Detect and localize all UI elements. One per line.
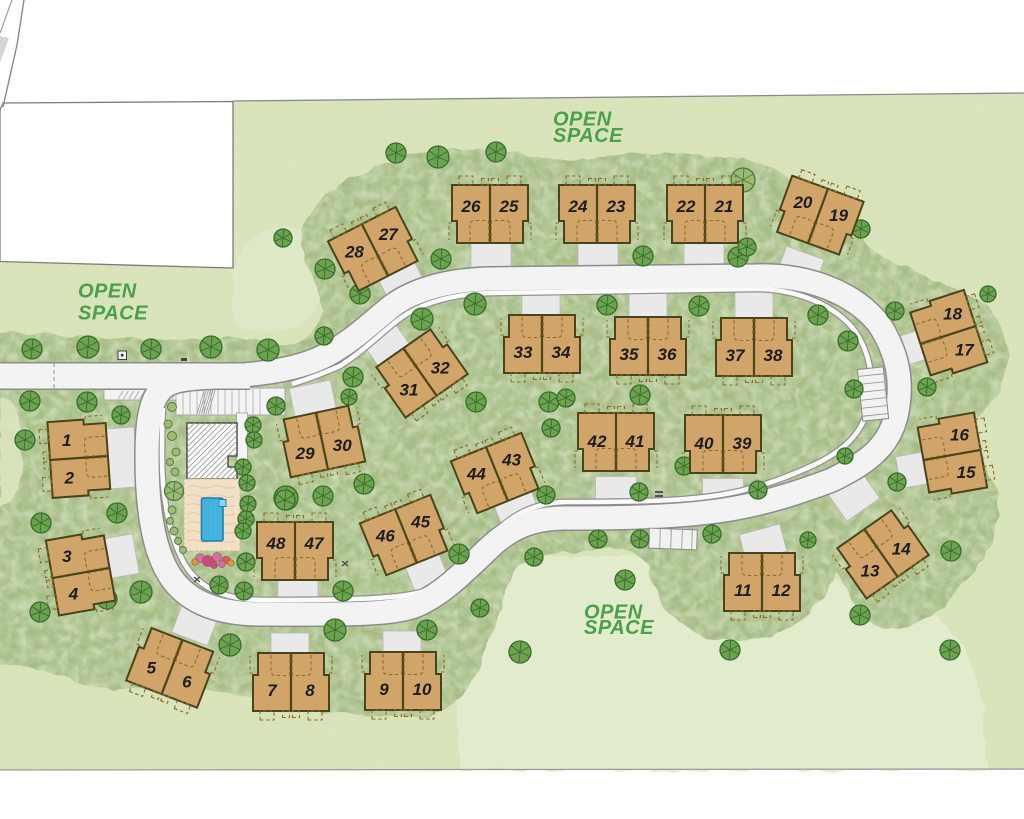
- svg-text:39: 39: [733, 434, 752, 453]
- svg-text:SPACE: SPACE: [553, 125, 623, 147]
- svg-text:15: 15: [957, 463, 976, 482]
- svg-text:6: 6: [182, 672, 192, 691]
- svg-text:33: 33: [514, 343, 533, 362]
- svg-text:45: 45: [410, 513, 430, 532]
- svg-text:14: 14: [892, 540, 911, 559]
- svg-text:SPACE: SPACE: [78, 303, 148, 325]
- svg-text:27: 27: [378, 225, 399, 244]
- svg-text:43: 43: [501, 451, 521, 470]
- svg-text:20: 20: [792, 193, 812, 212]
- svg-text:13: 13: [861, 562, 880, 581]
- svg-text:21: 21: [714, 197, 734, 216]
- svg-text:OPEN: OPEN: [78, 281, 137, 303]
- svg-text:12: 12: [772, 581, 791, 600]
- svg-text:48: 48: [266, 534, 286, 553]
- svg-text:16: 16: [950, 425, 969, 444]
- svg-text:19: 19: [829, 206, 848, 225]
- svg-text:37: 37: [726, 346, 746, 365]
- svg-text:44: 44: [466, 465, 486, 484]
- svg-text:24: 24: [568, 197, 588, 216]
- svg-text:1: 1: [62, 431, 71, 450]
- svg-text:22: 22: [676, 197, 696, 216]
- svg-text:11: 11: [734, 581, 752, 600]
- svg-text:46: 46: [375, 527, 395, 546]
- svg-text:30: 30: [333, 436, 352, 455]
- svg-text:9: 9: [379, 680, 389, 699]
- svg-text:29: 29: [295, 444, 315, 463]
- svg-text:26: 26: [461, 197, 481, 216]
- svg-text:36: 36: [658, 345, 677, 364]
- svg-text:38: 38: [764, 346, 783, 365]
- svg-text:32: 32: [431, 359, 450, 378]
- svg-text:5: 5: [147, 659, 157, 678]
- svg-text:SPACE: SPACE: [584, 617, 654, 639]
- svg-text:28: 28: [344, 243, 364, 262]
- svg-text:35: 35: [620, 345, 639, 364]
- svg-text:31: 31: [400, 381, 419, 400]
- svg-text:25: 25: [499, 197, 519, 216]
- svg-text:47: 47: [304, 534, 325, 553]
- svg-text:40: 40: [694, 434, 714, 453]
- svg-text:41: 41: [625, 432, 645, 451]
- svg-text:18: 18: [943, 305, 962, 324]
- svg-text:17: 17: [955, 341, 975, 360]
- svg-text:42: 42: [587, 432, 607, 451]
- svg-text:34: 34: [552, 343, 571, 362]
- svg-text:7: 7: [267, 681, 278, 700]
- svg-text:8: 8: [305, 681, 315, 700]
- svg-text:3: 3: [62, 547, 72, 566]
- svg-text:2: 2: [64, 469, 75, 488]
- svg-text:23: 23: [606, 197, 626, 216]
- svg-text:4: 4: [68, 585, 79, 604]
- svg-text:10: 10: [413, 680, 432, 699]
